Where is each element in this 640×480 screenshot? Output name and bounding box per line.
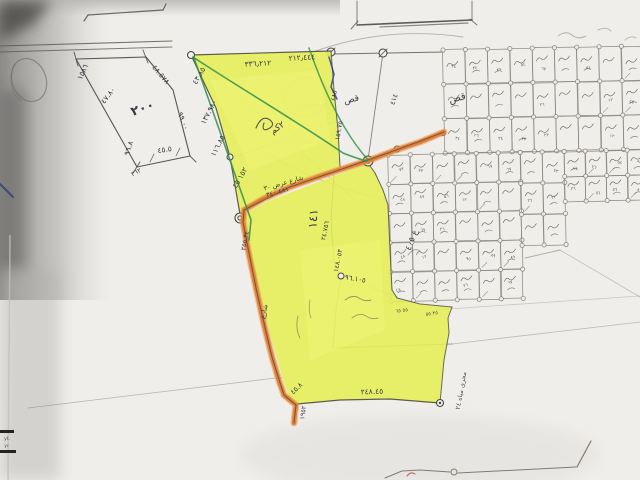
grid-node-circle <box>563 211 567 215</box>
grid-node-circle <box>576 114 580 118</box>
grid-node-circle <box>510 150 514 154</box>
dimension-label: ٢٤٨.٤٥ <box>360 387 383 397</box>
grid-node-circle <box>508 81 512 85</box>
grid-node-circle <box>598 113 602 117</box>
grid-node-circle <box>605 198 609 202</box>
grid-node-circle <box>532 149 536 153</box>
survey-point <box>338 273 344 279</box>
grid-node-circle <box>518 150 522 154</box>
lot-number-label: ٢٣ <box>544 132 550 138</box>
grid-node-circle <box>620 79 624 83</box>
lot-number-label: ٢٦ <box>527 199 533 204</box>
grid-node-circle <box>563 174 567 178</box>
grid-node-circle <box>454 268 458 272</box>
grid-node-circle <box>554 149 558 153</box>
grid-node-circle <box>521 296 525 300</box>
top-shadow <box>0 0 340 16</box>
grid-node-circle <box>530 46 534 50</box>
lot-number-label: ١٤١ <box>305 209 320 229</box>
grid-node-circle <box>497 180 501 184</box>
grid-node-circle <box>619 44 623 48</box>
grid-node-circle <box>496 151 500 155</box>
lot-number-label: ٢٦ <box>540 103 545 108</box>
grid-node-circle <box>409 211 413 215</box>
grid-node-circle <box>598 79 602 83</box>
survey-point <box>439 402 441 404</box>
grid-node-circle <box>575 45 579 49</box>
grid-node-circle <box>442 117 446 121</box>
grid-node-circle <box>564 242 568 246</box>
grid-node-circle <box>554 114 558 118</box>
survey-map: ٣٤٣٤٨٩٥٤٦٧٥٤٢٦١٢٤٥٣٤٢٦٣٤٧٣٢٣١٢٧٣٧٣٦٧٦٧٤٨… <box>0 0 640 480</box>
grid-node-circle <box>465 116 469 120</box>
dimension-label: ٢١٢٫٤٤٤ <box>288 52 315 62</box>
grid-node-circle <box>485 47 489 51</box>
edge-shadow <box>0 90 26 270</box>
grid-node-circle <box>498 238 502 242</box>
grid-node-circle <box>477 297 481 301</box>
grid-node-circle <box>552 46 556 50</box>
grid-node-circle <box>443 151 447 155</box>
grid-node-circle <box>563 180 567 184</box>
grid-node-circle <box>476 239 480 243</box>
fragment-text: yr. <box>4 443 10 449</box>
grid-node-circle <box>563 199 567 203</box>
lot-number-label: ٦٧ <box>421 228 427 233</box>
grid-node-circle <box>433 298 437 302</box>
grid-node-circle <box>475 210 479 214</box>
grid-node-circle <box>441 48 445 52</box>
grid-node-circle <box>626 198 630 202</box>
grid-node-circle <box>431 181 435 185</box>
lot-number-label: ٢٦ <box>440 228 445 233</box>
grid-node-circle <box>408 153 412 157</box>
dimension-label: ٣٣٦٫٢١٢ <box>244 58 271 68</box>
grid-node-circle <box>455 298 459 302</box>
grid-node-circle <box>542 243 546 247</box>
grid-node-circle <box>531 115 535 119</box>
grid-node-circle <box>464 82 468 86</box>
grid-node-circle <box>605 173 609 177</box>
grid-node-circle <box>597 45 601 49</box>
grid-node-circle <box>621 113 625 117</box>
lot-number-label: ٨٩ <box>420 195 425 200</box>
grid-node-circle <box>626 173 630 177</box>
grid-node-circle <box>474 151 478 155</box>
grid-node-circle <box>583 149 587 153</box>
grid-node-circle <box>584 174 588 178</box>
grid-node-circle <box>463 47 467 51</box>
grid-node-circle <box>432 269 436 273</box>
grid-node-circle <box>553 80 557 84</box>
grid-node-circle <box>519 212 523 216</box>
fragment-text: yt. <box>4 436 10 442</box>
grid-node-circle <box>476 268 480 272</box>
grid-node-circle <box>430 152 434 156</box>
grid-node-circle <box>498 267 502 271</box>
grid-node-circle <box>519 181 523 185</box>
grid-node-circle <box>488 150 492 154</box>
grid-node-circle <box>584 199 588 203</box>
grid-node-circle <box>487 116 491 120</box>
grid-node-circle <box>431 210 435 214</box>
grid-node-circle <box>562 149 566 153</box>
grid-node-circle <box>508 46 512 50</box>
grid-node-circle <box>575 79 579 83</box>
survey-map-photo: ٣٤٣٤٨٩٥٤٦٧٥٤٢٦١٢٤٥٣٤٢٦٣٤٧٣٢٣١٢٧٣٧٣٦٧٦٧٤٨… <box>0 0 640 480</box>
grid-node-circle <box>531 80 535 84</box>
grid-node-circle <box>387 182 391 186</box>
grid-node-circle <box>625 148 629 152</box>
grid-node-circle <box>486 81 490 85</box>
grid-node-circle <box>454 239 458 243</box>
grid-node-circle <box>409 182 413 186</box>
lot-number-label: ٣٤ <box>451 64 457 70</box>
grid-node-circle <box>509 115 513 119</box>
grid-node-circle <box>452 152 456 156</box>
grid-node-circle <box>541 181 545 185</box>
lot-number-label: ٢٦ <box>571 187 577 192</box>
grid-node-circle <box>604 148 608 152</box>
fragment-bar <box>0 450 16 453</box>
grid-node-circle <box>453 181 457 185</box>
grid-node-circle <box>410 269 414 273</box>
grid-node-circle <box>497 209 501 213</box>
grid-node-circle <box>432 240 436 244</box>
grid-node-circle <box>541 212 545 216</box>
grid-node-circle <box>475 180 479 184</box>
grid-node-circle <box>499 297 503 301</box>
fragment-bar <box>0 430 14 433</box>
grid-node-circle <box>520 243 524 247</box>
grid-node-circle <box>540 150 544 154</box>
grid-node-circle <box>442 82 446 86</box>
grid-node-circle <box>453 210 457 214</box>
grid-node-circle <box>520 267 524 271</box>
